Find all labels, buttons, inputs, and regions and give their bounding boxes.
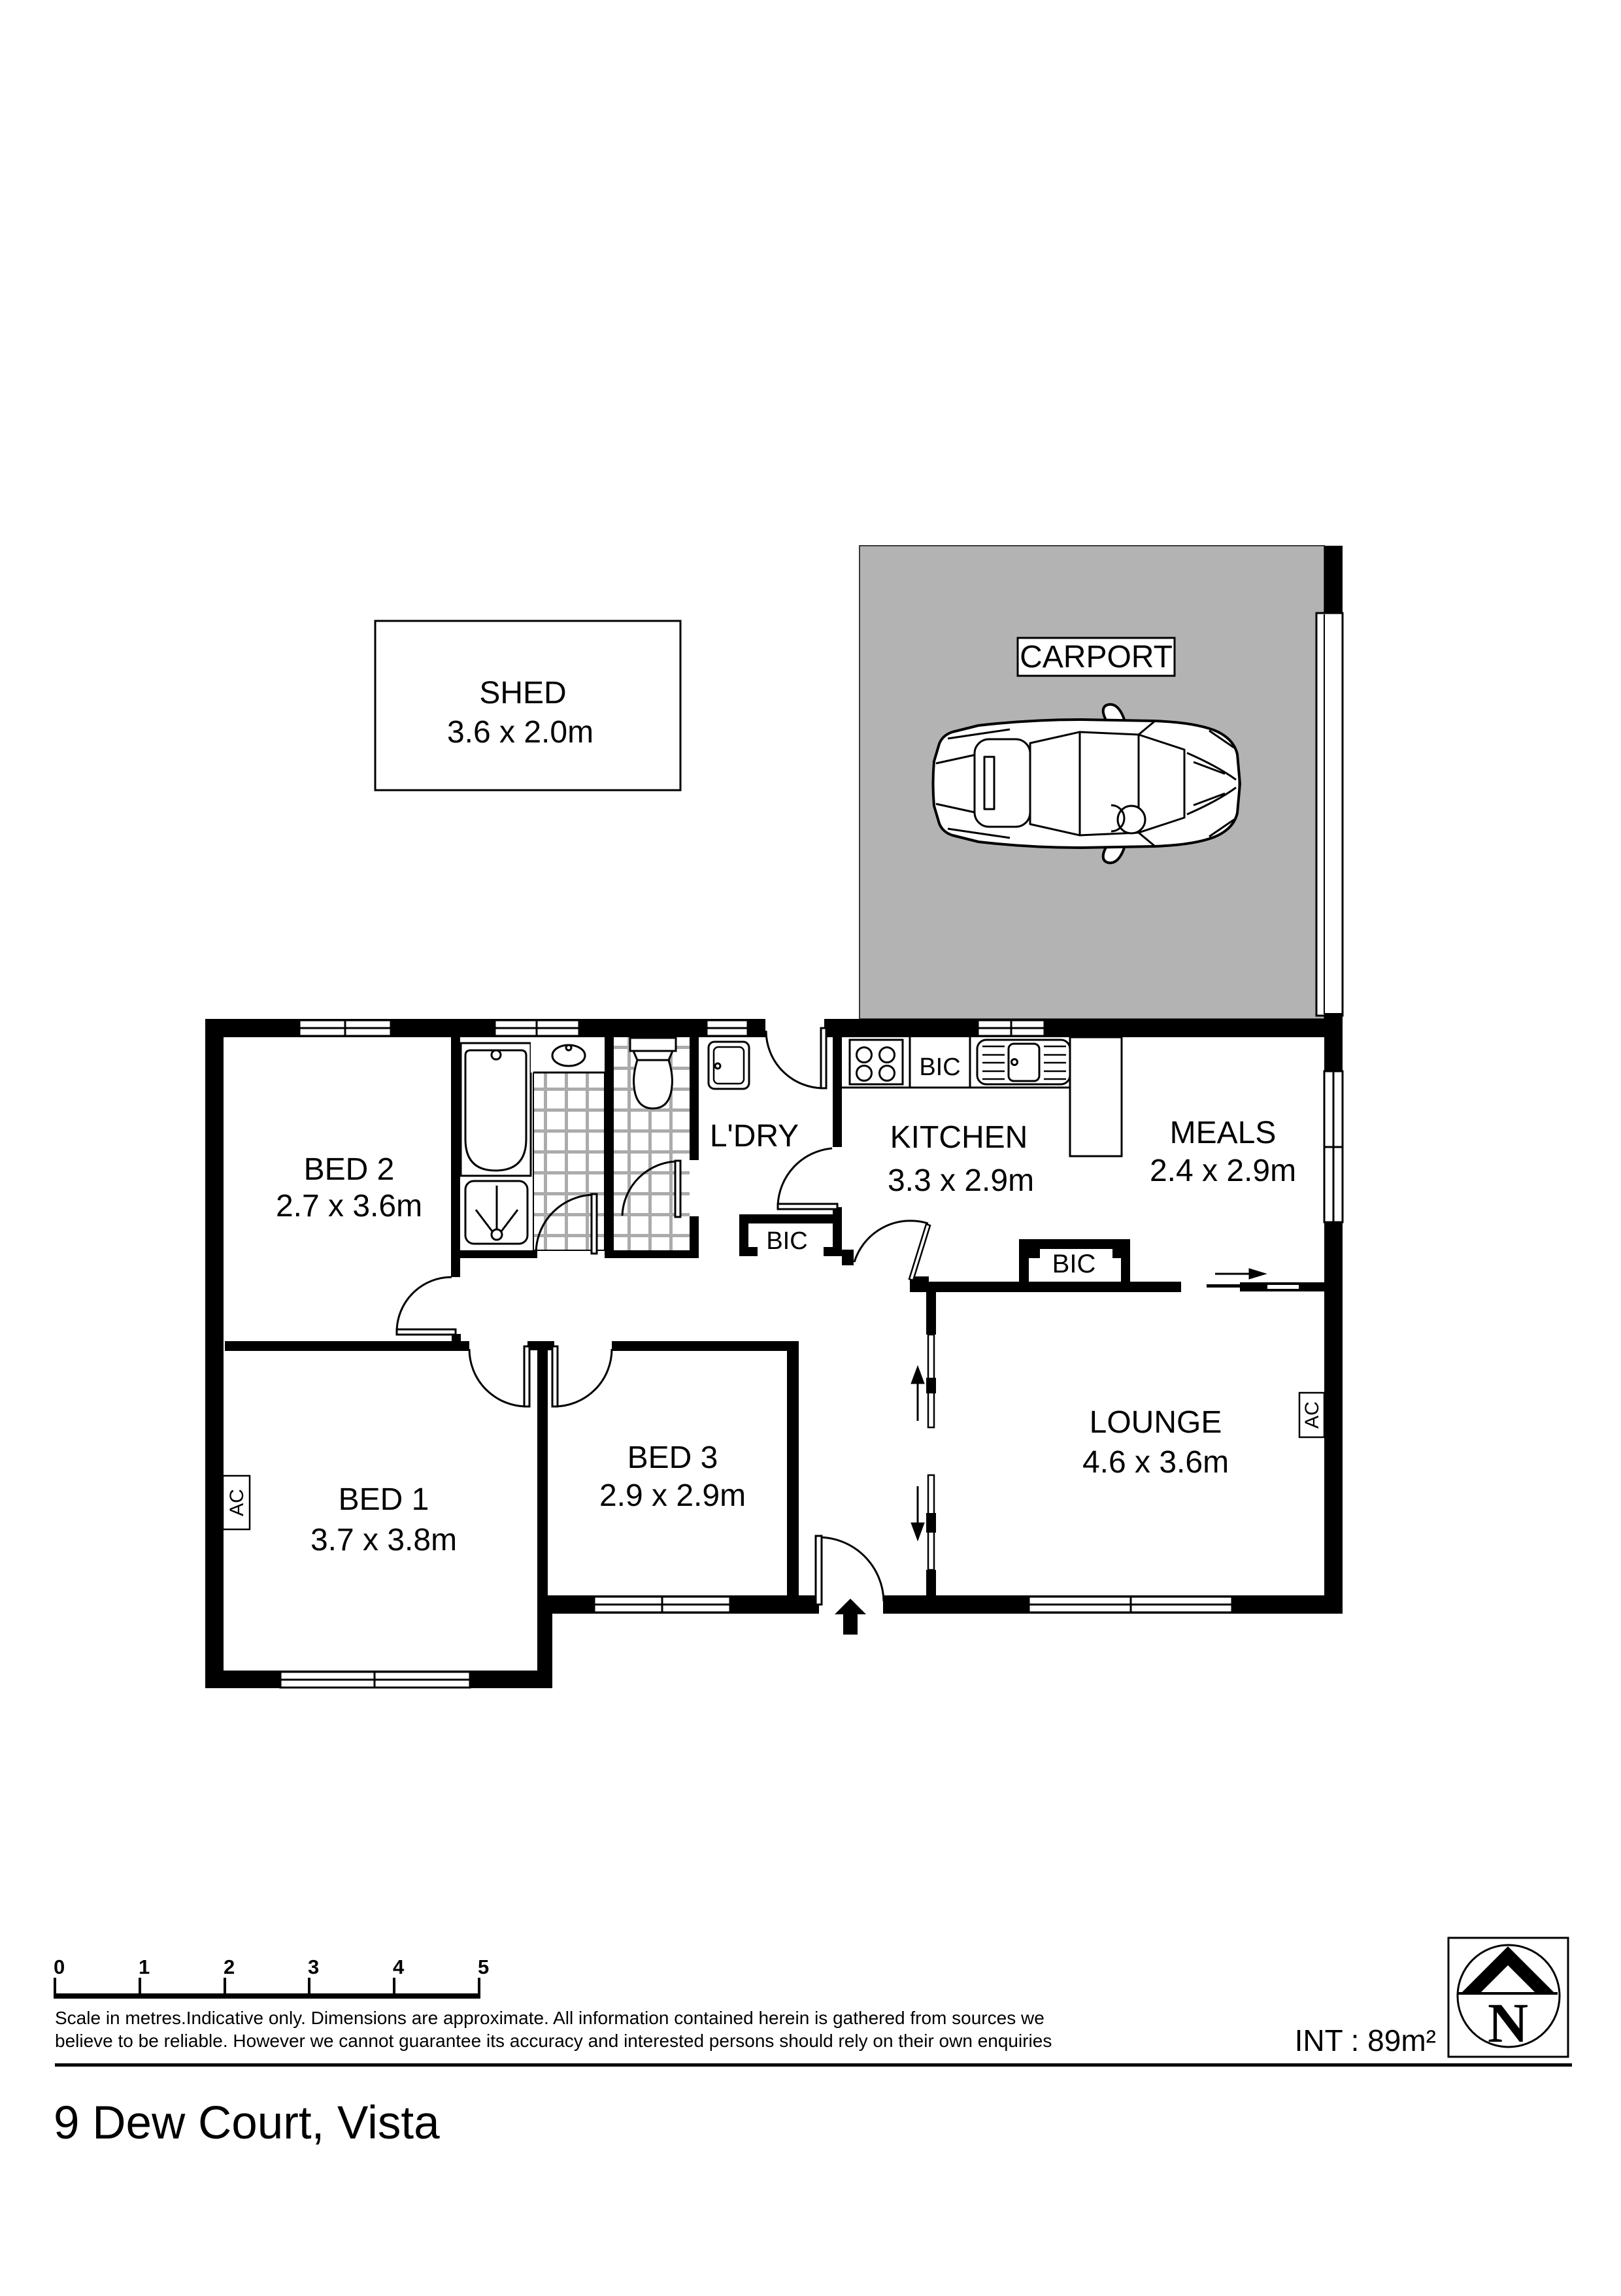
svg-text:4.6 x 3.6m: 4.6 x 3.6m — [1082, 1445, 1229, 1480]
svg-text:BIC: BIC — [1052, 1250, 1096, 1278]
svg-text:N: N — [1488, 1991, 1528, 2054]
svg-text:BED 1: BED 1 — [339, 1482, 429, 1517]
svg-text:3.7 x 3.8m: 3.7 x 3.8m — [310, 1523, 457, 1557]
svg-text:LOUNGE: LOUNGE — [1090, 1405, 1222, 1440]
svg-text:3.6 x 2.0m: 3.6 x 2.0m — [447, 715, 593, 750]
svg-text:KITCHEN: KITCHEN — [890, 1120, 1028, 1155]
svg-text:4: 4 — [393, 1955, 405, 1978]
svg-text:2.7 x 3.6m: 2.7 x 3.6m — [276, 1189, 422, 1223]
svg-text:2.9 x 2.9m: 2.9 x 2.9m — [599, 1478, 746, 1513]
svg-text:0: 0 — [54, 1955, 65, 1978]
svg-text:INT : 89m²: INT : 89m² — [1295, 2023, 1436, 2057]
svg-text:BIC: BIC — [919, 1054, 960, 1081]
svg-text:CARPORT: CARPORT — [1020, 640, 1173, 674]
svg-text:2: 2 — [224, 1955, 235, 1978]
svg-text:1: 1 — [139, 1955, 150, 1978]
svg-text:3: 3 — [308, 1955, 319, 1978]
svg-text:MEALS: MEALS — [1170, 1116, 1277, 1150]
svg-text:9 Dew Court, Vista: 9 Dew Court, Vista — [54, 2097, 440, 2149]
svg-text:BED 2: BED 2 — [304, 1152, 395, 1187]
svg-text:Scale in metres.Indicative onl: Scale in metres.Indicative only. Dimensi… — [55, 2008, 1044, 2028]
svg-text:believe to be reliable. Howeve: believe to be reliable. However we canno… — [55, 2031, 1052, 2051]
svg-text:AC: AC — [1301, 1401, 1323, 1429]
svg-text:AC: AC — [226, 1489, 248, 1516]
svg-text:3.3 x 2.9m: 3.3 x 2.9m — [888, 1163, 1034, 1198]
svg-text:BED 3: BED 3 — [627, 1440, 718, 1475]
svg-text:BIC: BIC — [766, 1227, 807, 1255]
svg-text:2.4 x 2.9m: 2.4 x 2.9m — [1150, 1154, 1296, 1188]
svg-text:SHED: SHED — [479, 676, 566, 710]
svg-text:L'DRY: L'DRY — [710, 1119, 799, 1154]
svg-text:5: 5 — [478, 1955, 489, 1978]
